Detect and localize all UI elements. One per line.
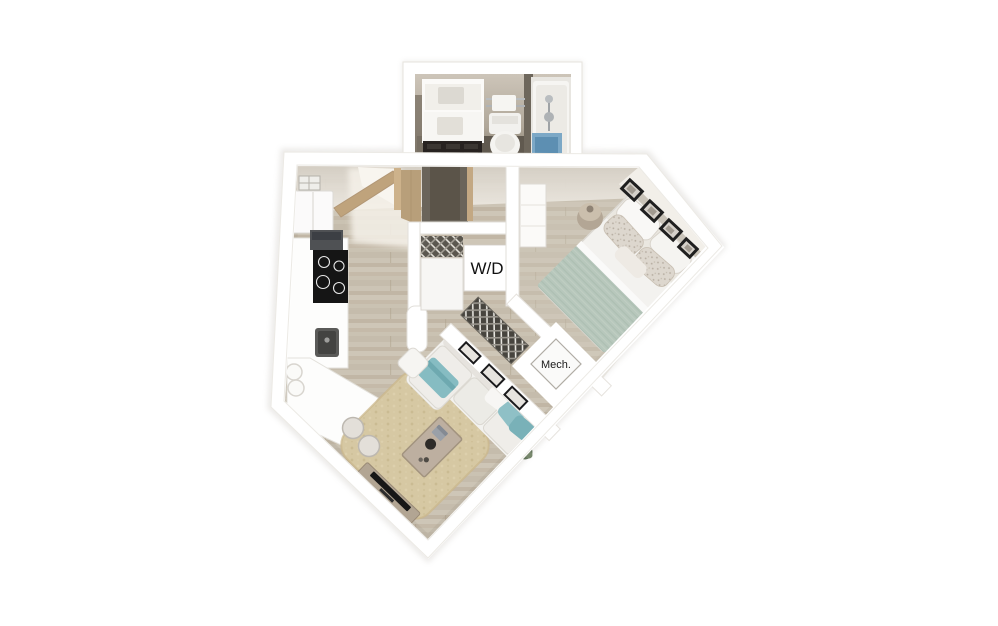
svg-text:Mech.: Mech.: [541, 359, 571, 371]
svg-text:W/D: W/D: [470, 259, 503, 278]
